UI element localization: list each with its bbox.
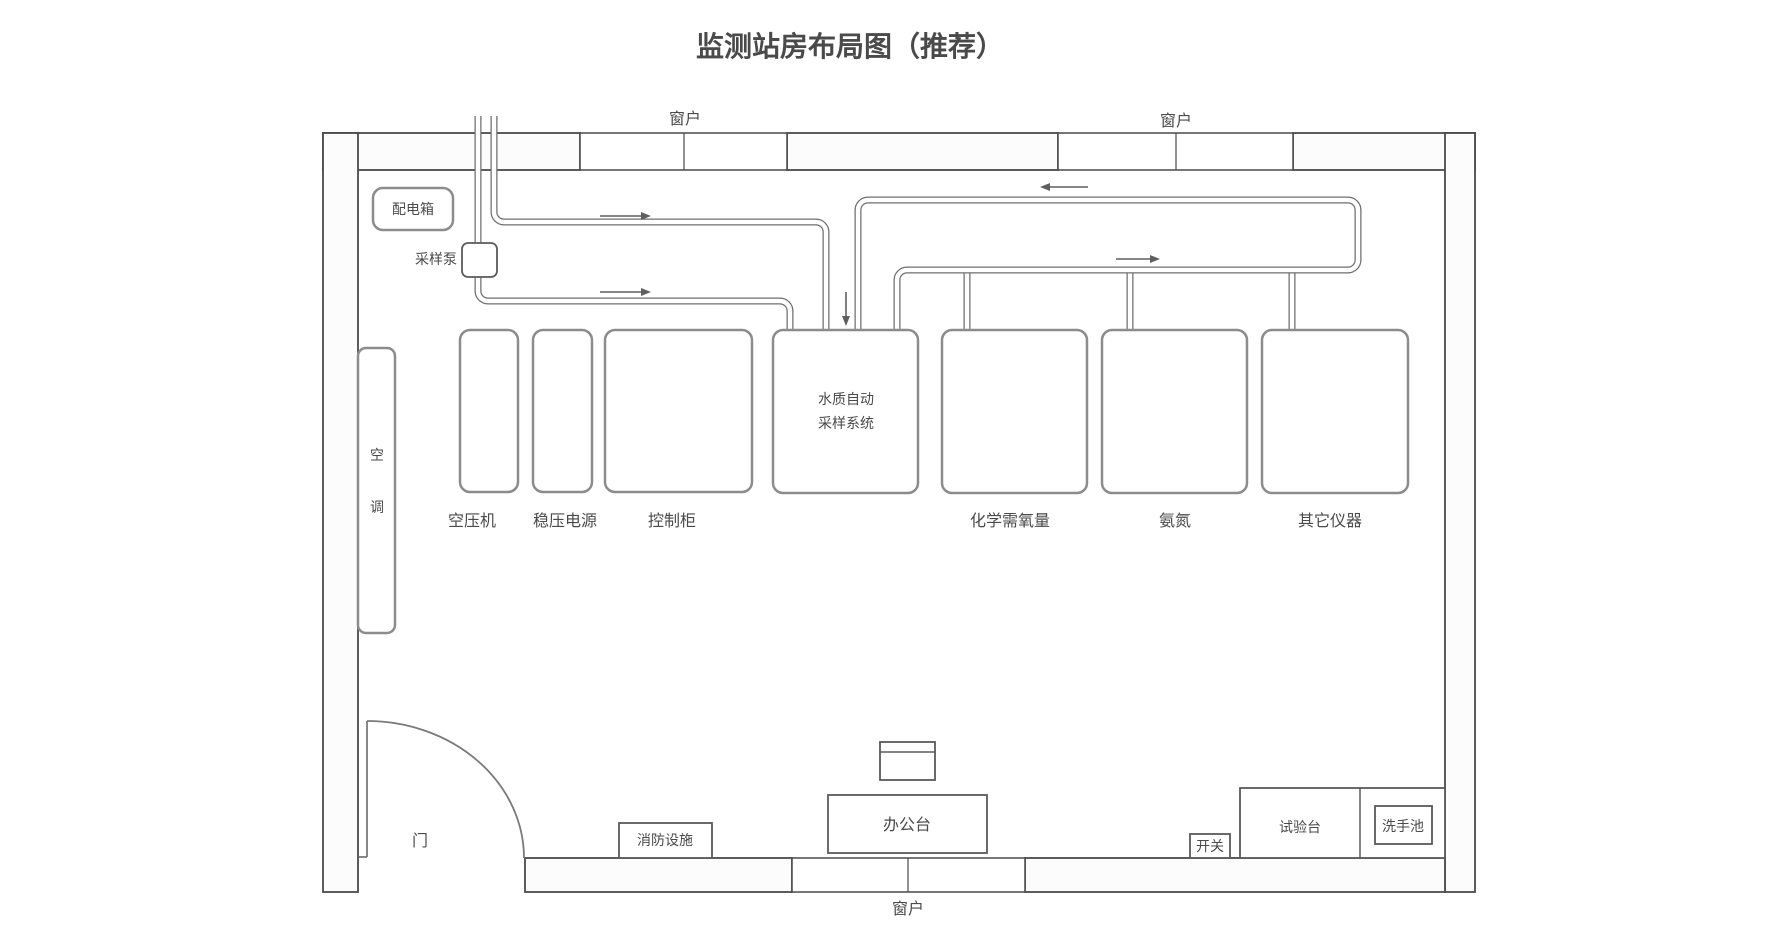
regulated-power-box xyxy=(533,330,592,492)
wall-top-left xyxy=(323,133,580,170)
window-label-top-left: 窗户 xyxy=(669,110,701,128)
air-compressor-label: 空压机 xyxy=(448,512,496,530)
regulated-power-label: 稳压电源 xyxy=(533,512,597,530)
desk-chair xyxy=(880,742,935,780)
floor-plan-page: 监测站房布局图（推荐） 窗户 窗户 窗户 xyxy=(0,0,1772,943)
other-instruments-box xyxy=(1262,330,1408,493)
flow-arrow-loop-bottom-head xyxy=(1150,255,1160,263)
test-bench-label: 试验台 xyxy=(1279,819,1321,835)
wall-bottom-left xyxy=(525,858,792,892)
air-conditioner-box xyxy=(358,348,395,633)
switch-label: 开关 xyxy=(1196,838,1224,854)
sampling-pump-label: 采样泵 xyxy=(415,251,457,267)
wall-bottom-right xyxy=(1025,858,1445,892)
wall-left xyxy=(323,133,358,892)
control-cabinet-box xyxy=(605,330,752,492)
water-sampler-label-line1: 水质自动 xyxy=(818,391,874,407)
air-compressor-box xyxy=(460,330,518,492)
water-sampler-box xyxy=(773,330,918,493)
other-instruments-label: 其它仪器 xyxy=(1298,512,1362,530)
door-label: 门 xyxy=(412,832,428,850)
ammonia-analyzer-box xyxy=(1102,330,1247,493)
wall-right xyxy=(1445,133,1475,892)
flow-arrow-inlet-head xyxy=(641,288,651,296)
pipe-distribution-loop xyxy=(858,200,1358,332)
fire-equipment-label: 消防设施 xyxy=(637,832,693,848)
wash-basin-label: 洗手池 xyxy=(1382,818,1424,834)
water-sampler-label-line2: 采样系统 xyxy=(818,415,874,431)
distribution-box-label: 配电箱 xyxy=(392,201,434,217)
flow-arrow-loop-top-head xyxy=(1040,183,1050,191)
page-title: 监测站房布局图（推荐） xyxy=(696,30,1004,62)
instrument-row: 水质自动 采样系统 空压机 稳压电源 控制柜 化学需氧量 氨氮 其它仪器 xyxy=(448,330,1408,530)
door-swing-arc xyxy=(367,721,524,858)
sampling-pump xyxy=(462,243,497,277)
floor-plan: 监测站房布局图（推荐） 窗户 窗户 窗户 xyxy=(0,0,1772,943)
ammonia-analyzer-label: 氨氮 xyxy=(1159,512,1191,530)
air-conditioner-label-char2: 调 xyxy=(370,499,384,515)
window-label-top-right: 窗户 xyxy=(1160,112,1192,130)
flow-arrow-return-head xyxy=(842,316,850,326)
air-conditioner: 空 调 xyxy=(358,348,395,633)
air-conditioner-label-char1: 空 xyxy=(370,447,384,463)
bottom-furniture: 消防设施 办公台 开关 试验台 洗手池 xyxy=(619,742,1445,858)
pipe-distribution-loop-inner xyxy=(858,200,1358,332)
wall-top-middle xyxy=(787,133,1058,170)
window-label-bottom: 窗户 xyxy=(892,900,924,918)
cod-analyzer-label: 化学需氧量 xyxy=(970,512,1050,530)
control-cabinet-label: 控制柜 xyxy=(648,512,696,530)
cod-analyzer-box xyxy=(942,330,1087,493)
office-desk-label: 办公台 xyxy=(883,816,931,834)
flow-arrows xyxy=(600,183,1160,326)
door: 门 xyxy=(359,721,524,858)
